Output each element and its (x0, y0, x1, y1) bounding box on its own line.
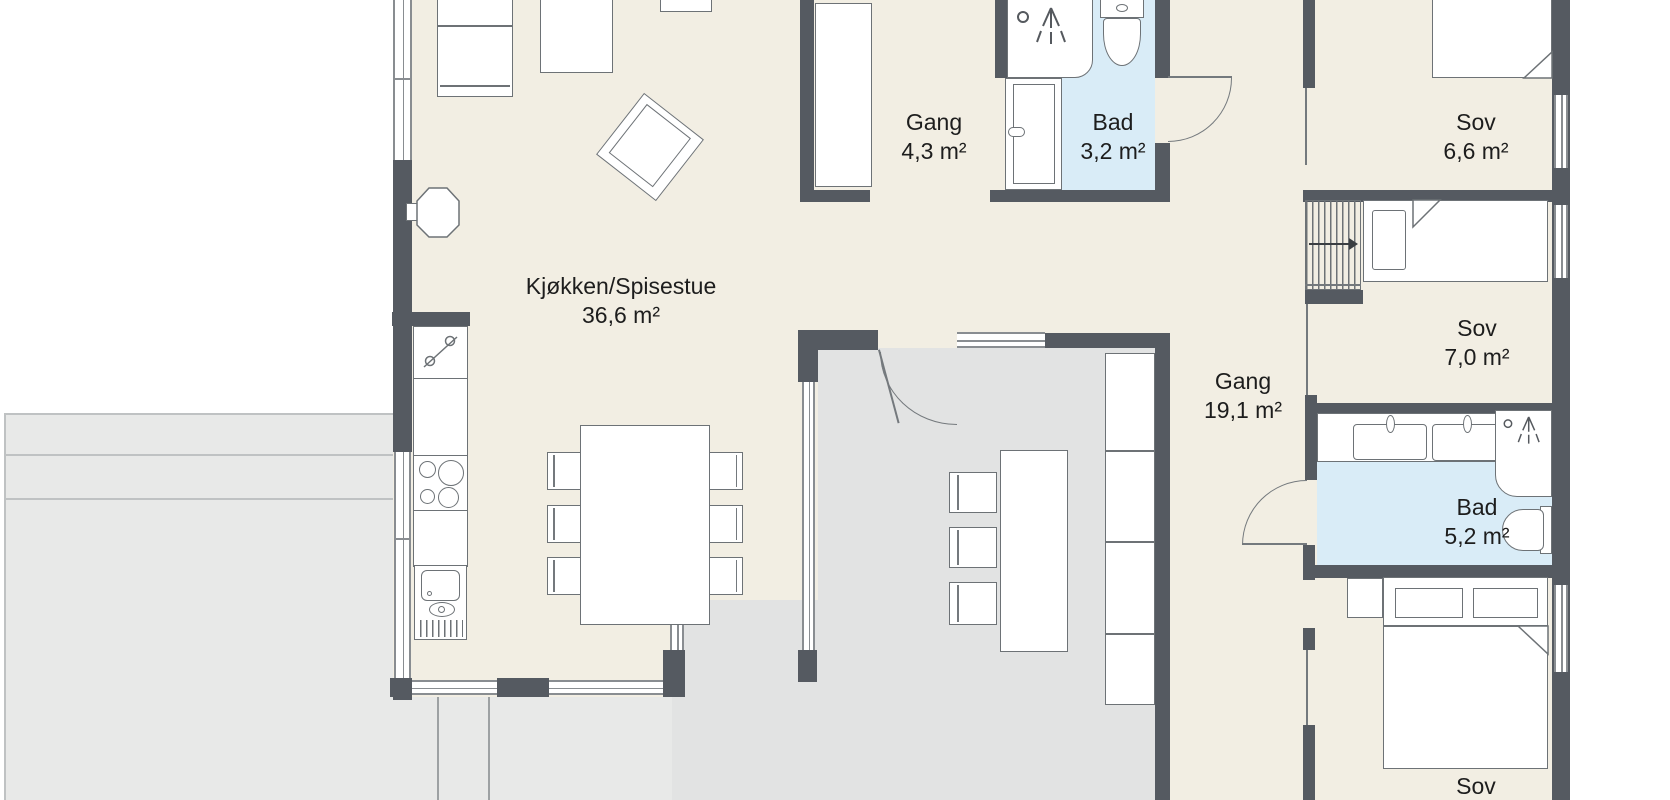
floor-plan: Kjøkken/Spisestue 36,6 m² Gang 4,3 m² Ba… (0, 0, 1670, 800)
terrace-floor (5, 413, 393, 800)
window (393, 0, 412, 160)
stairs-edge (1305, 284, 1361, 286)
sofa-seat (540, 0, 613, 73)
room-label-bedroom-2: Sov 7,0 m² (1444, 314, 1509, 372)
room-label-bedroom-1: Sov 6,6 m² (1443, 108, 1508, 166)
bed-fold (1413, 200, 1440, 227)
wall-thin (1306, 650, 1308, 725)
room-area: 3,2 m² (1080, 137, 1145, 166)
cabinet-divider (1105, 633, 1155, 635)
wall-stairs-bottom (1305, 290, 1363, 304)
door-leaf (1305, 88, 1307, 165)
pillow (1395, 588, 1463, 618)
faucet (1463, 415, 1472, 433)
room-name: Bad (1444, 493, 1509, 522)
kitchen-counter (413, 378, 468, 457)
bar-chair (949, 472, 997, 513)
wall-jog (392, 312, 470, 326)
stairs-arrow-head (1349, 238, 1358, 250)
wall-stub (800, 190, 870, 202)
terrace-side-line (4, 413, 6, 800)
sink-faucet-dot (438, 606, 445, 613)
bed-fold (1524, 52, 1552, 78)
room-name: Bad (1080, 108, 1145, 137)
sofa-line (440, 85, 510, 87)
kitchen-appliance-icon (414, 327, 467, 379)
faucet (1386, 415, 1395, 433)
cooktop-burner (419, 461, 436, 478)
dining-chair (547, 505, 581, 543)
room-name: Kjøkken/Spisestue (526, 272, 716, 301)
exterior-wall-bottom (497, 678, 549, 697)
cabinet-divider (1105, 541, 1155, 543)
window-mullion (394, 538, 411, 540)
wall-annex-top (1045, 333, 1170, 348)
annex-floor-ext (672, 600, 818, 800)
cooktop-burner (438, 487, 459, 508)
room-label-hall-main: Gang 19,1 m² (1204, 367, 1282, 425)
dining-chair (709, 557, 743, 595)
room-name: Gang (1204, 367, 1282, 396)
room-area: 5,2 m² (1444, 522, 1509, 551)
toilet-button (1116, 4, 1128, 12)
room-area: 6,6 m² (1443, 137, 1508, 166)
cooktop-burner (420, 489, 435, 504)
terrace-step-line (5, 454, 393, 456)
wall-annex-right (1155, 348, 1170, 800)
wall-annex-left-low (798, 650, 817, 682)
window (1554, 585, 1568, 672)
dining-chair (547, 557, 581, 595)
sink-bowl (421, 570, 460, 601)
wall-stub (990, 190, 1170, 202)
room-area: 4,3 m² (901, 137, 966, 166)
room-name: Gang (901, 108, 966, 137)
stairs-direction-line (1309, 243, 1351, 245)
room-name: Sov (1443, 108, 1508, 137)
window (957, 332, 1045, 348)
room-label-hall-top: Gang 4,3 m² (901, 108, 966, 166)
room-label-bath-small: Bad 3,2 m² (1080, 108, 1145, 166)
wall-bath-small-right (1155, 143, 1170, 202)
bed-fold (1518, 626, 1548, 654)
wardrobe (815, 3, 872, 187)
bar-chair (949, 527, 997, 568)
nightstand (1347, 578, 1383, 618)
wall-living-hall (800, 0, 814, 192)
room-label-bedroom-3: Sov (1456, 772, 1496, 800)
room-area: 36,6 m² (526, 301, 716, 330)
room-label-kitchen: Kjøkken/Spisestue 36,6 m² (526, 272, 716, 330)
island-table (1000, 450, 1068, 652)
room-area: 19,1 m² (1204, 396, 1282, 425)
room-area: 7,0 m² (1444, 343, 1509, 372)
room-name: Sov (1456, 772, 1496, 800)
window-mullion (393, 78, 412, 80)
exterior-wall-bottom (390, 678, 412, 697)
terrace-edge-line (4, 413, 393, 415)
dining-chair (709, 452, 743, 490)
pillow (1372, 210, 1406, 270)
shower-icon (1500, 414, 1550, 454)
wood-stove-icon (415, 186, 461, 240)
window (1554, 95, 1568, 168)
window (394, 452, 411, 680)
sink-drainboard (420, 620, 463, 637)
wall-bedroom3-left (1303, 628, 1315, 650)
cabinet-row (1105, 353, 1155, 705)
cabinet-divider (1105, 450, 1155, 452)
path-edge-line (488, 697, 490, 800)
window (802, 382, 815, 650)
window (1554, 205, 1568, 278)
wall-thin (1306, 304, 1308, 403)
kitchen-counter (413, 510, 468, 567)
room-label-bath-main: Bad 5,2 m² (1444, 493, 1509, 551)
sofa-line (438, 25, 512, 27)
shower-icon (1014, 4, 1078, 58)
cooktop-burner (438, 460, 464, 486)
sink-drain (427, 591, 432, 596)
sofa (437, 0, 513, 97)
dining-table (580, 425, 710, 625)
terrace-step-line (5, 498, 393, 500)
bar-chair (949, 582, 997, 625)
room-name: Sov (1444, 314, 1509, 343)
pillow (1473, 588, 1538, 618)
wall-corridor-top (1303, 0, 1315, 88)
side-table (660, 0, 712, 12)
wall-bath-small-right (1155, 0, 1170, 78)
path-edge-line (437, 697, 439, 800)
window (412, 680, 497, 695)
wall-bedroom3-left (1303, 725, 1315, 800)
shower-handle (1008, 127, 1025, 137)
wall-annex-left (798, 330, 818, 382)
window (549, 680, 663, 695)
dining-chair (547, 452, 581, 490)
exterior-wall-corner (663, 650, 685, 697)
dining-chair (709, 505, 743, 543)
